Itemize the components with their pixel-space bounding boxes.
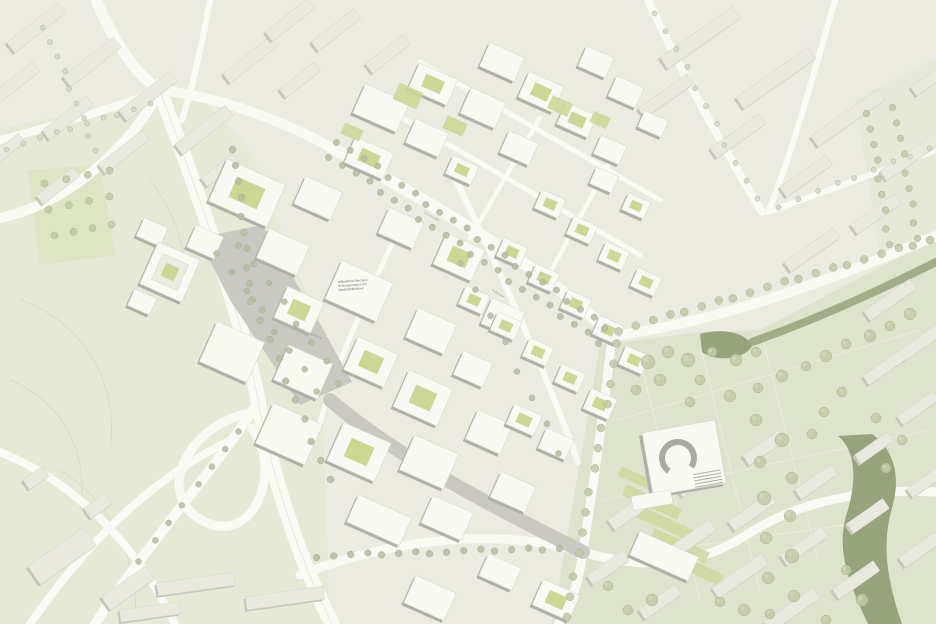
masterplan-viewport[interactable]: Wilhelmine-Reichard-Bildungscampus mitSt… (0, 0, 936, 624)
masterplan-map-canvas[interactable]: Wilhelmine-Reichard-Bildungscampus mitSt… (0, 0, 936, 624)
